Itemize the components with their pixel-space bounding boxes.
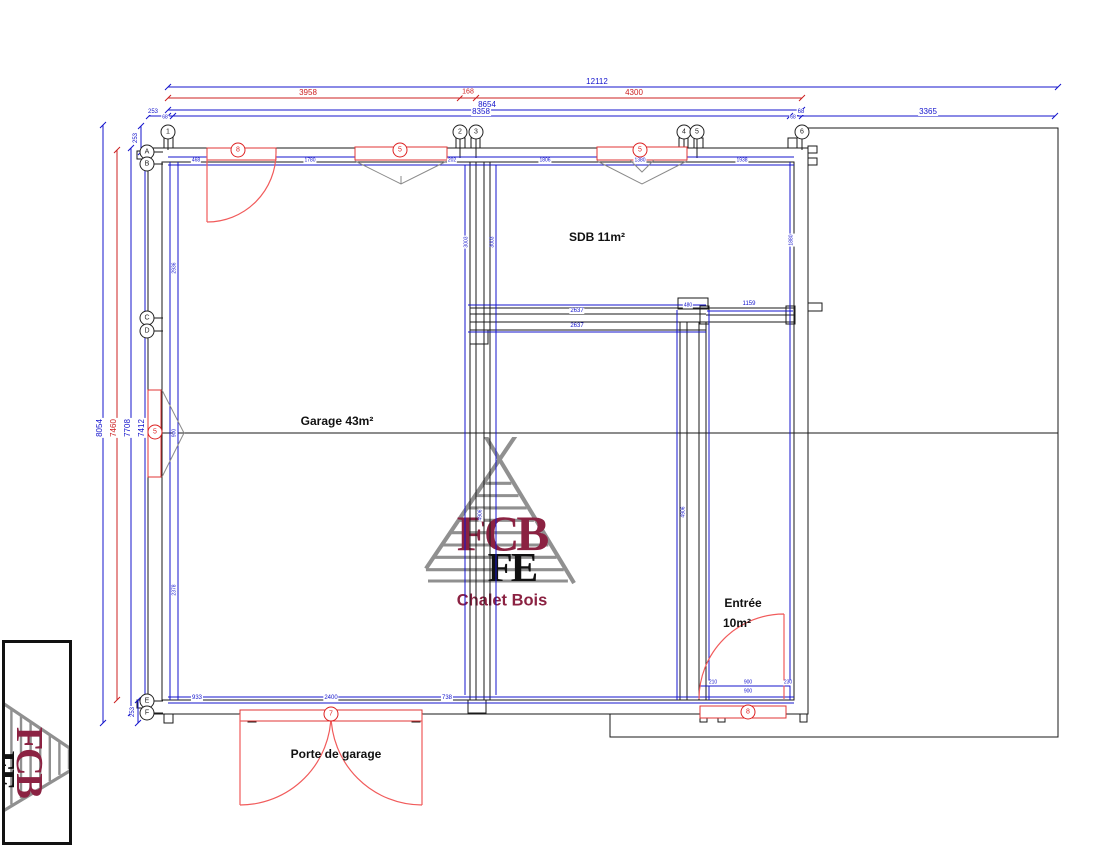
- dimension-label: 738: [441, 695, 453, 701]
- room-label-garage: Garage 43m²: [301, 414, 374, 428]
- dimension-label: 2637: [569, 323, 584, 329]
- dimension-label: 7460: [110, 418, 118, 438]
- dimension-label: 68: [789, 116, 797, 121]
- dimension-label: 210: [708, 681, 718, 686]
- dimension-label: 8358: [471, 108, 491, 116]
- dimension-label: 3958: [298, 89, 318, 97]
- floor-plan-canvas: FCB FE Chalet Bois: [0, 0, 1097, 847]
- dimension-label: 2400: [323, 695, 338, 701]
- dimension-label: 253: [130, 706, 136, 718]
- room-label-entree-area: 10m²: [723, 616, 751, 630]
- dimension-label: 1780: [303, 159, 316, 164]
- fcb-chalet-bois-logo-rotated: FCB FE Chalet Bois: [2, 697, 72, 825]
- dimension-label: 12112: [585, 78, 609, 86]
- dimension-label: 3003: [491, 235, 496, 248]
- dimension-label: 468: [191, 159, 201, 164]
- dimension-label: 1159: [742, 301, 757, 307]
- dimension-label: 7412: [138, 418, 146, 438]
- opening-marker: 8: [231, 143, 246, 158]
- dimension-label: 4906: [479, 508, 484, 521]
- dimension-label: 68: [797, 109, 806, 115]
- logo-graphic: FCB FE Chalet Bois: [2, 697, 72, 825]
- grid-bubble: D: [140, 324, 155, 339]
- dimension-label: 202: [447, 159, 457, 164]
- dimension-label: 253: [147, 109, 159, 115]
- room-label-entree: Entrée: [724, 596, 761, 610]
- logo-overlay-text: FE: [2, 751, 22, 789]
- opening-marker: 5: [148, 425, 163, 440]
- dimension-label: 2936: [173, 261, 178, 274]
- dimension-label: 480: [683, 304, 693, 309]
- dimension-label: 3003: [465, 235, 470, 248]
- opening-marker: 8: [741, 705, 756, 720]
- dimension-label: 8054: [96, 418, 104, 438]
- opening-marker: 5: [393, 143, 408, 158]
- dimension-label: 933: [191, 695, 203, 701]
- label-porte-de-garage: Porte de garage: [291, 747, 382, 761]
- dimension-label: 900: [743, 690, 753, 695]
- dimension-label: 3365: [918, 108, 938, 116]
- grid-bubble: 3: [469, 125, 484, 140]
- grid-bubble: 5: [690, 125, 705, 140]
- dimension-label: 1380: [633, 159, 646, 164]
- dimension-label: 230: [783, 681, 793, 686]
- grid-bubble: 2: [453, 125, 468, 140]
- grid-bubble: B: [140, 157, 155, 172]
- dimension-label: 2637: [569, 308, 584, 314]
- dimension-label: 900: [173, 428, 178, 438]
- dimension-label: 1938: [735, 159, 748, 164]
- dimension-label: 68: [161, 116, 169, 121]
- dimension-label: 4300: [624, 89, 644, 97]
- dimension-label: 4906: [682, 505, 687, 518]
- room-label-sdb: SDB 11m²: [569, 230, 625, 244]
- grid-bubble: 1: [161, 125, 176, 140]
- grid-bubble: F: [140, 706, 155, 721]
- dimension-label: 253: [133, 132, 139, 144]
- grid-bubble: 6: [795, 125, 810, 140]
- dimension-label: 1806: [538, 159, 551, 164]
- dimension-label: 900: [743, 681, 753, 686]
- opening-marker: 7: [324, 707, 339, 722]
- dimension-label: 2378: [173, 583, 178, 596]
- dimension-label: 1880: [790, 233, 795, 246]
- dimension-label: 7708: [124, 418, 132, 438]
- title-block: FCB FE Chalet Bois: [2, 640, 72, 845]
- dimension-label: 168: [461, 89, 475, 96]
- opening-marker: 5: [633, 143, 648, 158]
- annotation-overlay: Garage 43m² SDB 11m² Entrée 10m² Porte d…: [0, 0, 1097, 847]
